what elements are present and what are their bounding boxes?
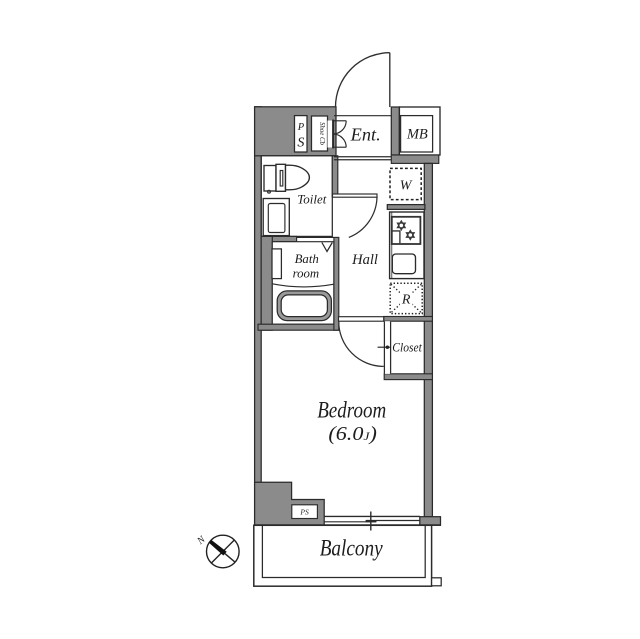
svg-text:Hall: Hall [351,252,378,268]
svg-text:Balcony: Balcony [320,536,383,562]
svg-text:Shoe Cb: Shoe Cb [318,122,325,145]
svg-text:MB: MB [406,127,428,143]
svg-text:R: R [401,292,411,307]
svg-text:P: P [297,122,305,133]
svg-text:Closet: Closet [392,340,422,355]
svg-text:Bedroom: Bedroom [317,397,386,423]
svg-text:W: W [400,178,413,193]
svg-text:Ent.: Ent. [350,125,381,145]
svg-text:S: S [297,136,304,151]
svg-text:PS: PS [299,508,309,517]
svg-text:room: room [293,267,320,281]
svg-text:Toilet: Toilet [297,193,326,207]
svg-text:Bath: Bath [295,252,319,266]
svg-text:(6.0J): (6.0J) [328,424,377,445]
